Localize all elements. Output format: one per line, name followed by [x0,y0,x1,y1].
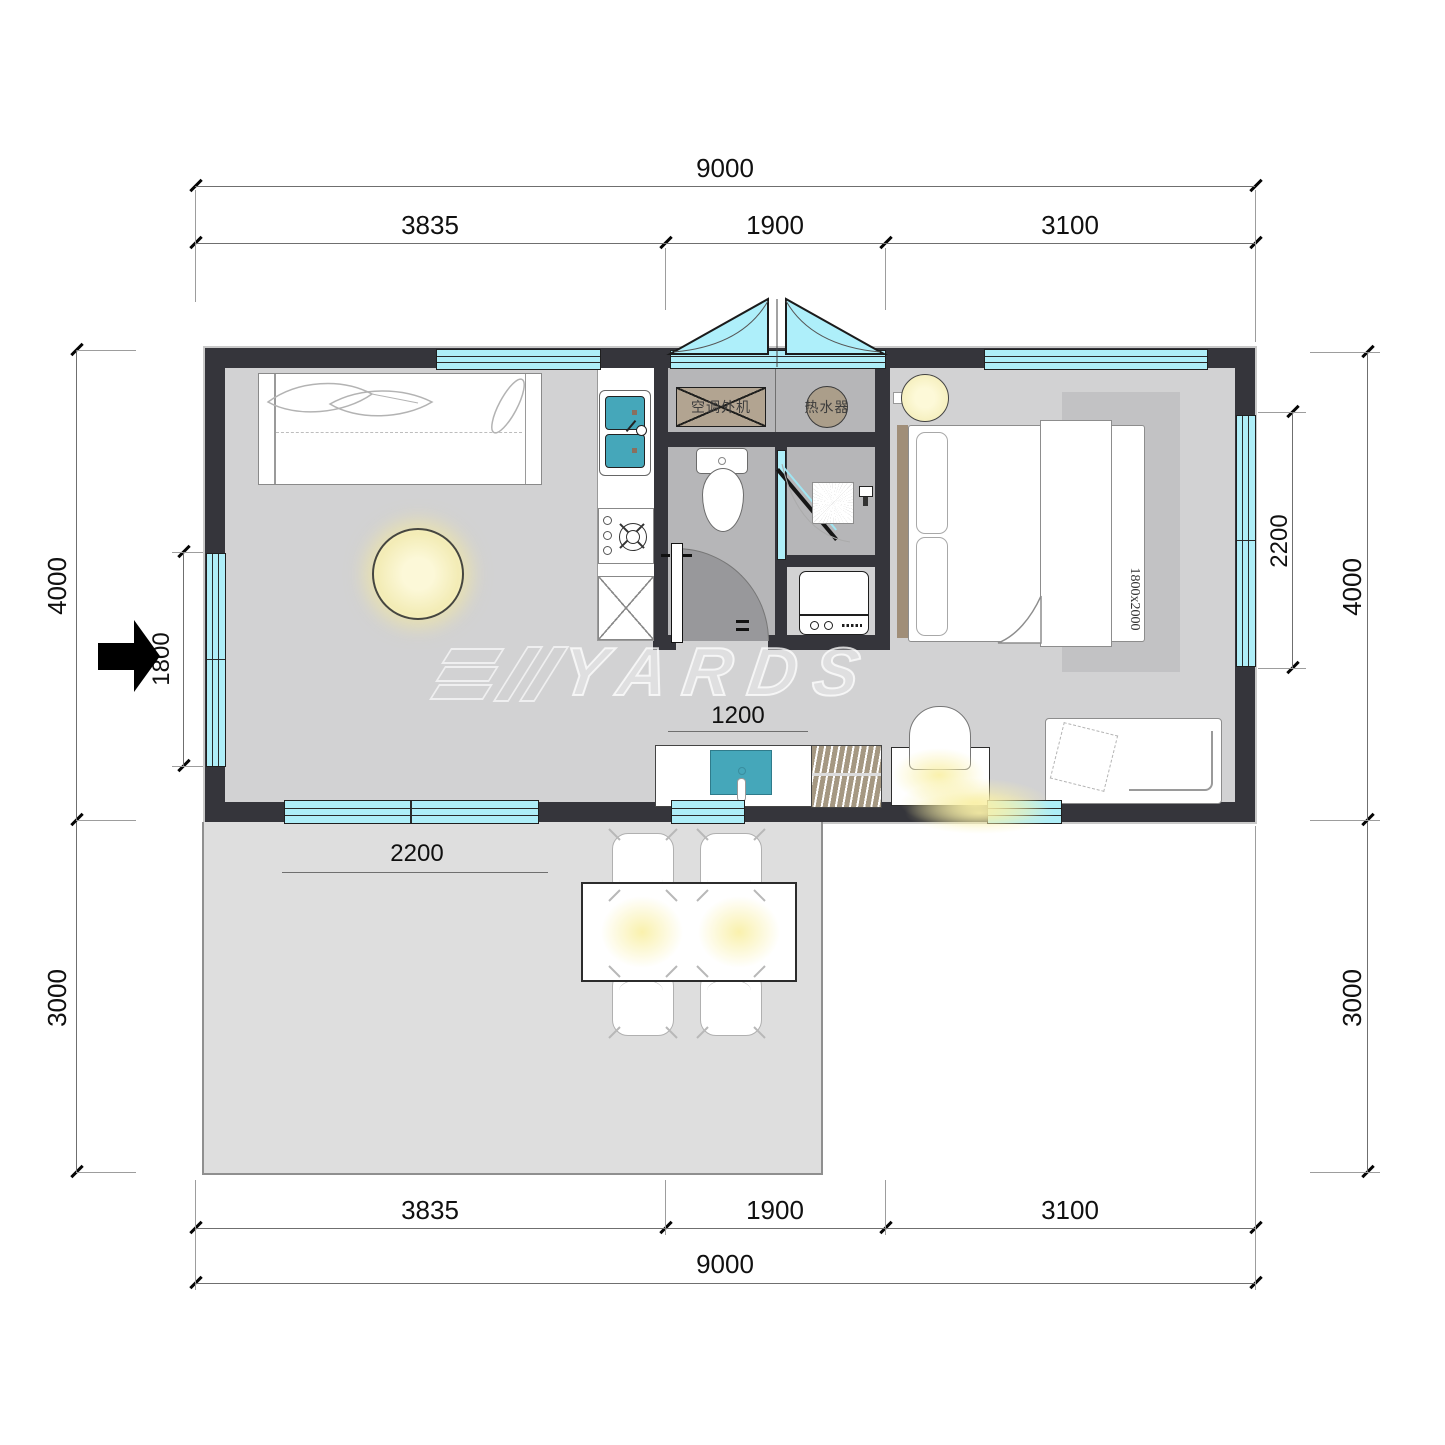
dim-vanity: 1200 [688,702,788,730]
window-right [1236,415,1256,667]
bed-size-label: 1800x2000 [1124,544,1142,654]
vanity-counter [655,745,812,807]
dining-light-glow [601,896,683,968]
dim-line [195,1228,1255,1229]
ac-outdoor-unit: 空调外机 [676,387,766,427]
shoe-cabinet [811,745,882,808]
shoe-cabinet-shelf-line [812,773,881,776]
watermark-emblem-bar [429,684,493,700]
utility-divider-line [775,368,776,432]
watermark-text: YARDS [557,634,881,710]
window-bottom-mid [671,800,745,824]
dim-line [183,552,184,766]
toilet-door-handle [683,554,692,557]
sofa-armrest-left [274,374,276,484]
entry-door-right-leaf [786,299,884,354]
dim-line [195,186,1255,187]
dim-patio-door: 2200 [317,840,517,868]
dining-light-glow [698,896,780,968]
dim-right-lower: 3000 [1338,938,1366,1058]
dim-line [282,872,548,873]
dim-right-upper: 4000 [1338,527,1366,647]
wall-shower-bottom [775,555,890,567]
sofa-armrest-right [525,374,527,484]
dim-line [1292,412,1293,668]
stove-knob [603,546,612,555]
entry-door-left-leaf [670,299,768,354]
sink-drain-dot [632,448,637,453]
bench-daybed [1045,718,1222,804]
sofa-backrest-line [276,432,522,433]
shower-mixer [859,486,873,497]
dim-left-upper: 4000 [43,526,71,646]
stove-knob [603,531,612,540]
stove [598,508,654,564]
dim-line [195,1283,1255,1284]
bedside-lamp [901,374,949,422]
shower-drain [812,482,854,524]
floor-plan-canvas: 空调外机 热水器 1800x2000 [0,0,1445,1445]
vanity-drain [738,767,746,775]
bed-blanket [1040,420,1112,647]
sink-basin-bottom [605,434,645,468]
shower-mixer-handle [863,497,868,506]
washing-machine [799,571,869,635]
sink-faucet [636,425,647,436]
dim-bottom-total: 9000 [625,1250,825,1278]
dim-line [76,350,77,820]
patio-slider-joint [410,801,412,823]
dim-bottom-seg1: 3835 [330,1196,530,1224]
entry-door-threshold [670,350,886,369]
dim-right-window: 2200 [1266,481,1294,601]
dim-left-lower: 3000 [43,938,71,1058]
patio-slider-door [284,800,539,824]
toilet-door-handle-closed [736,620,749,623]
sofa [258,373,542,485]
wall-utility-bottom [653,432,890,447]
chair-back-line [707,979,751,1002]
washing-machine-buttons [842,624,862,627]
window-left-joint [207,659,225,660]
wall-kitchen-bath [653,368,668,650]
window-left-slider [206,553,226,767]
dim-line [1367,822,1368,1172]
dim-line [668,731,808,732]
washing-machine-panel-line [800,614,868,616]
kitchen-base-cabinet [598,576,654,640]
watermark-emblem-bar [435,666,499,682]
dim-bottom-seg2: 1900 [675,1196,875,1224]
toilet-flush-button [718,457,726,465]
toilet-door-handle [661,554,670,557]
dim-top-seg3: 3100 [970,211,1170,239]
entry-arrow [98,620,160,692]
watermark-emblem-bar [441,648,505,664]
bed-pillow [916,537,948,636]
ceiling-light-living [372,528,464,620]
window-right-joint [1237,540,1255,541]
vanity-faucet [737,778,746,802]
water-heater: 热水器 [806,386,848,428]
dim-top-seg2: 1900 [675,211,875,239]
water-heater-label: 热水器 [805,397,850,417]
toilet-door-leaf [671,543,683,643]
wall-bedroom [875,368,890,650]
bench-backrest-line [1129,731,1213,791]
bench-pillow [1050,722,1118,792]
washing-machine-knob [824,621,833,630]
window-top-left [436,349,601,370]
kitchen-sink-unit [599,390,651,476]
washing-machine-knob [810,621,819,630]
dim-line [195,243,1255,244]
dim-line [76,822,77,1172]
toilet-door-handle-closed [736,628,749,631]
sink-drain-dot [632,410,637,415]
desk-glow-over-wall [905,792,1055,834]
chair-back-line [619,979,663,1002]
dim-line [1367,352,1368,820]
dim-top-seg1: 3835 [330,211,530,239]
stove-knob [603,516,612,525]
entry-arrow-shaft [98,643,136,670]
bed-pillow [916,432,948,534]
dim-top-total: 9000 [625,154,825,182]
dim-bottom-seg3: 3100 [970,1196,1170,1224]
bed-headboard [897,425,908,638]
entry-arrow-head [134,620,160,692]
stove-burner-center [626,530,640,544]
window-top-right [984,349,1208,370]
dining-table [581,882,797,982]
ac-outdoor-unit-label: 空调外机 [691,397,751,417]
